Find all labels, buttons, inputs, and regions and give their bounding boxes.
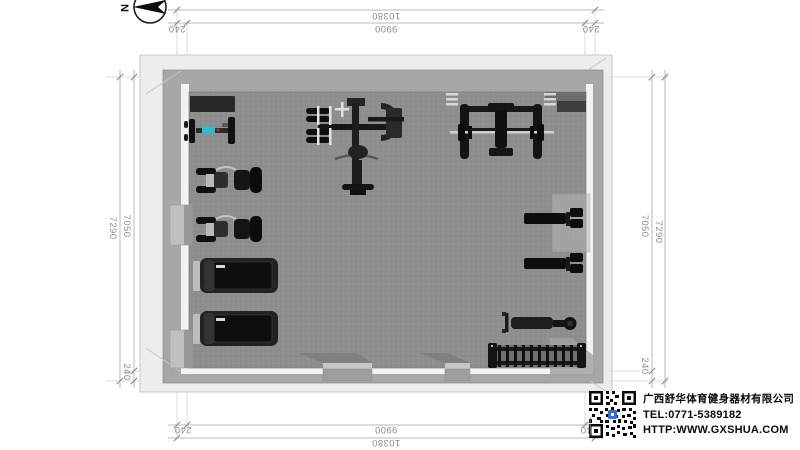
dim-left-inner: 7050 — [121, 215, 132, 238]
north-label: N — [118, 4, 130, 12]
dim-left-bottom-wall: 240 — [121, 363, 132, 380]
company-info-block: 广西舒华体育健身器材有限公司 TEL:0771-5389182 HTTP:WWW… — [589, 391, 795, 438]
dumbbell-rack — [488, 343, 586, 368]
dim-top-right-wall: 240 — [582, 23, 599, 34]
dim-right-overall: 7290 — [653, 221, 664, 244]
floor-mat — [190, 96, 235, 112]
dimensions-right: 7050 240 7290 — [639, 70, 668, 388]
dim-top-left-wall: 240 — [168, 23, 185, 34]
company-text: 广西舒华体育健身器材有限公司 TEL:0771-5389182 HTTP:WWW… — [643, 391, 794, 437]
qr-code — [589, 391, 636, 438]
dim-top-inner: 9900 — [375, 23, 398, 34]
floorplan-drawing: 10380 9900 240 240 9900 240 240 10380 72… — [0, 0, 800, 450]
dim-bottom-inner: 9900 — [375, 424, 398, 435]
dim-left-overall: 7290 — [107, 217, 118, 240]
dim-bottom-left-wall: 240 — [174, 424, 191, 435]
treadmill-2 — [193, 311, 278, 346]
dim-top-overall: 10380 — [372, 10, 400, 21]
dimensions-bottom: 9900 240 240 10380 — [168, 422, 604, 448]
dim-right-inner: 7050 — [639, 215, 650, 238]
dimensions-top: 10380 9900 240 240 — [168, 7, 604, 34]
floorplan-page: 10380 9900 240 240 9900 240 240 10380 72… — [0, 0, 800, 450]
column-left-2 — [170, 330, 192, 368]
column-left-1 — [170, 205, 192, 245]
company-url: HTTP:WWW.GXSHUA.COM — [643, 424, 794, 437]
dim-right-bottom-wall: 240 — [639, 357, 650, 374]
dimensions-left: 7290 7050 240 — [107, 70, 137, 388]
dim-bottom-overall: 10380 — [372, 437, 400, 448]
treadmill-1 — [193, 258, 278, 293]
north-compass: N — [118, 0, 166, 23]
company-name: 广西舒华体育健身器材有限公司 — [643, 393, 794, 406]
company-tel: TEL:0771-5389182 — [643, 409, 794, 422]
